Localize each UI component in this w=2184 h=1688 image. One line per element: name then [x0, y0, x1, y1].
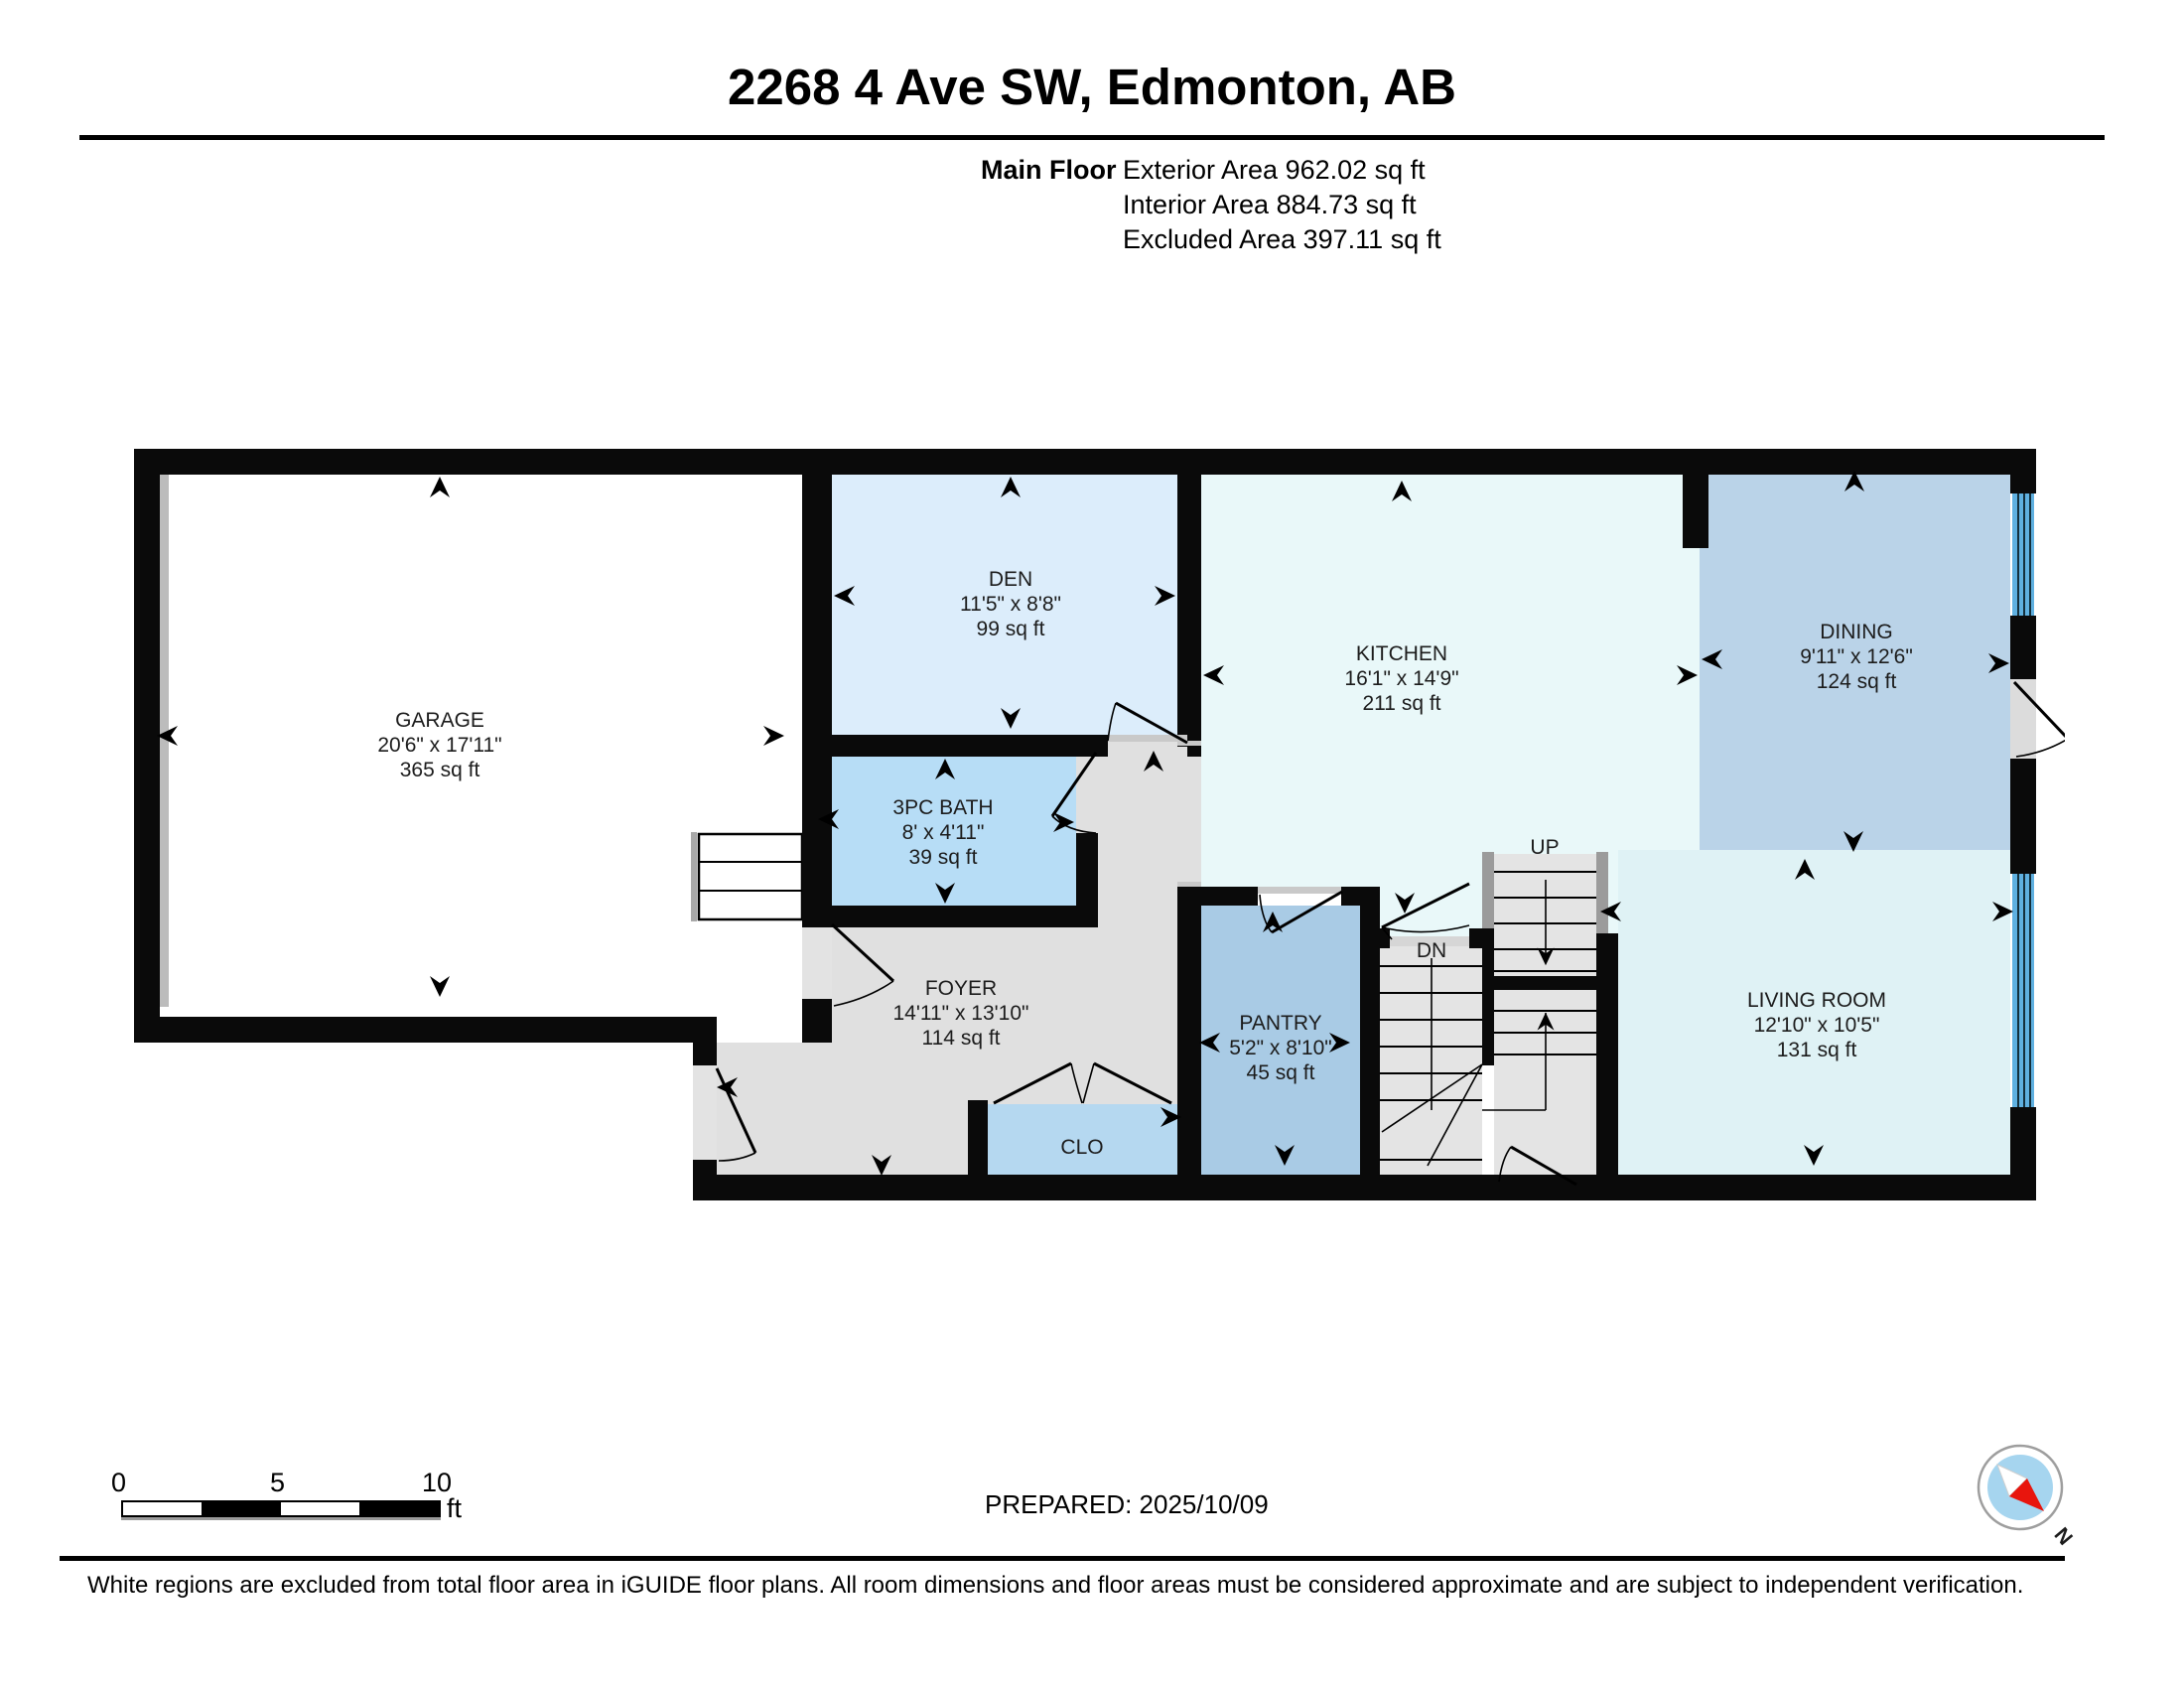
dining-area: 124 sq ft [1817, 670, 1897, 693]
north-label: N [2050, 1523, 2077, 1549]
garage-dims: 20'6" x 17'11" [377, 734, 501, 757]
bath-name: 3PC BATH [892, 796, 993, 819]
foyer-dims: 14'11" x 13'10" [893, 1002, 1029, 1025]
room-garage: GARAGE 20'6" x 17'11" 365 sq ft [377, 709, 501, 781]
garage-name: GARAGE [395, 709, 484, 732]
kitchen-dims: 16'1" x 14'9" [1344, 667, 1458, 690]
living-name: LIVING ROOM [1747, 989, 1886, 1012]
compass-icon: N [1971, 1440, 2090, 1559]
dining-dims: 9'11" x 12'6" [1800, 645, 1913, 668]
dining-name: DINING [1820, 621, 1893, 643]
bath-area: 39 sq ft [909, 846, 978, 869]
stairs-up [1482, 852, 1608, 988]
pantry-name: PANTRY [1239, 1012, 1321, 1035]
pantry-area: 45 sq ft [1247, 1061, 1315, 1084]
closet-name: CLO [1060, 1136, 1103, 1159]
bath-dims: 8' x 4'11" [902, 821, 985, 844]
stairs-down-label: DN [1417, 939, 1446, 962]
header-divider [79, 135, 2105, 140]
footer-divider [60, 1556, 2065, 1561]
den-name: DEN [989, 568, 1032, 591]
prepared-date: PREPARED: 2025/10/09 [985, 1489, 1269, 1520]
den-dims: 11'5" x 8'8" [960, 593, 1061, 616]
living-area: 131 sq ft [1777, 1039, 1857, 1061]
excluded-area: Excluded Area 397.11 sq ft [1123, 224, 1441, 255]
scale-bar: 0 5 10 ft [119, 1468, 596, 1527]
floor-label: Main Floor [981, 155, 1117, 186]
floorplan-page: 2268 4 Ave SW, Edmonton, AB Main Floor E… [0, 0, 2184, 1688]
stairs-up-label: UP [1530, 836, 1559, 859]
dining-window [2012, 493, 2034, 616]
scale-tick-0: 0 [111, 1468, 126, 1498]
foyer-area: 114 sq ft [922, 1027, 1001, 1050]
foyer-name: FOYER [925, 977, 997, 1000]
exterior-area: Exterior Area 962.02 sq ft [1123, 155, 1426, 186]
kitchen-name: KITCHEN [1356, 642, 1447, 665]
stairs-down [1375, 936, 1482, 1175]
pantry-dims: 5'2" x 8'10" [1229, 1037, 1332, 1059]
floor-plan: GARAGE 20'6" x 17'11" 365 sq ft DEN 11'5… [129, 437, 2065, 1211]
kitchen-area: 211 sq ft [1363, 692, 1441, 715]
scale-unit: ft [447, 1493, 462, 1524]
den-area: 99 sq ft [977, 618, 1045, 640]
living-dims: 12'10" x 10'5" [1754, 1014, 1880, 1037]
disclaimer-text: White regions are excluded from total fl… [87, 1572, 2023, 1600]
page-title: 2268 4 Ave SW, Edmonton, AB [0, 58, 2184, 116]
interior-area: Interior Area 884.73 sq ft [1123, 190, 1417, 220]
living-floor [1618, 850, 2010, 1175]
garage-area: 365 sq ft [400, 759, 480, 781]
scale-tick-5: 5 [270, 1468, 285, 1498]
stairs-garage-landing [691, 832, 802, 921]
living-window [2012, 874, 2034, 1107]
